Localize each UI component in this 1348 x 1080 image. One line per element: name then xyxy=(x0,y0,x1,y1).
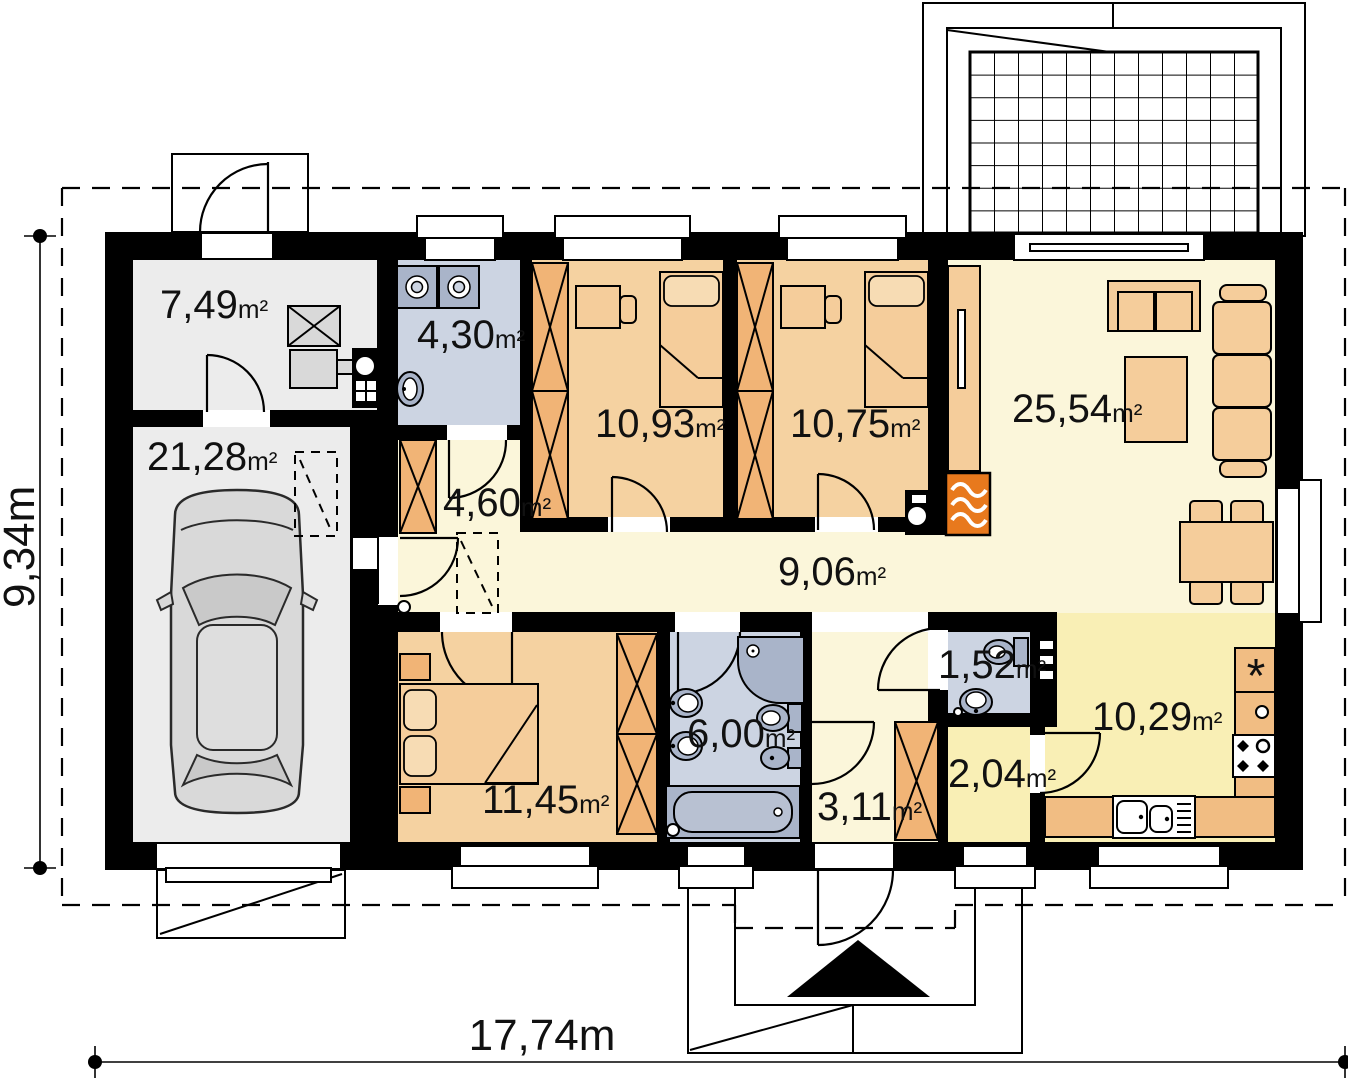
sofa-small xyxy=(1108,281,1200,331)
bedroom-2-window xyxy=(779,216,906,260)
chair xyxy=(620,296,636,323)
corridor-nook-floor xyxy=(812,632,928,718)
chair xyxy=(825,296,841,323)
sofa-large xyxy=(1213,285,1271,477)
nightstand xyxy=(400,654,430,680)
bathtub xyxy=(666,786,800,838)
terrace-pergola-grid xyxy=(970,52,1258,233)
desk xyxy=(781,286,825,328)
terrace xyxy=(923,3,1305,236)
fireplace xyxy=(946,473,990,535)
entrance-porch xyxy=(688,870,1022,1053)
bathroom-window xyxy=(679,846,753,888)
stove xyxy=(1233,735,1275,777)
terrace-sliding-door xyxy=(1014,234,1204,260)
bedroom-3-window xyxy=(452,846,598,888)
desk xyxy=(576,286,620,328)
width-dimension: 17,74m xyxy=(469,1011,616,1060)
garage-car xyxy=(157,490,317,813)
kitchen-window xyxy=(1090,846,1228,888)
floor-plan-drawing: * 7,49m² 4,30m² 21,28m² 10,93m² 10,75m² … xyxy=(0,0,1348,1080)
dining-table xyxy=(1180,522,1273,582)
pantry-window xyxy=(955,846,1035,888)
fridge-symbol: * xyxy=(1247,650,1266,703)
height-dimension: 9,34m xyxy=(0,486,44,608)
utility-stoop xyxy=(172,154,308,232)
laundry-window xyxy=(417,216,503,260)
garage-door xyxy=(166,868,331,882)
nightstand xyxy=(400,787,430,813)
living-room-window xyxy=(1277,480,1321,622)
kitchen-sink xyxy=(1113,796,1195,838)
floor-plan-page: * 7,49m² 4,30m² 21,28m² 10,93m² 10,75m² … xyxy=(0,0,1348,1080)
bedroom-1-window xyxy=(555,216,690,260)
